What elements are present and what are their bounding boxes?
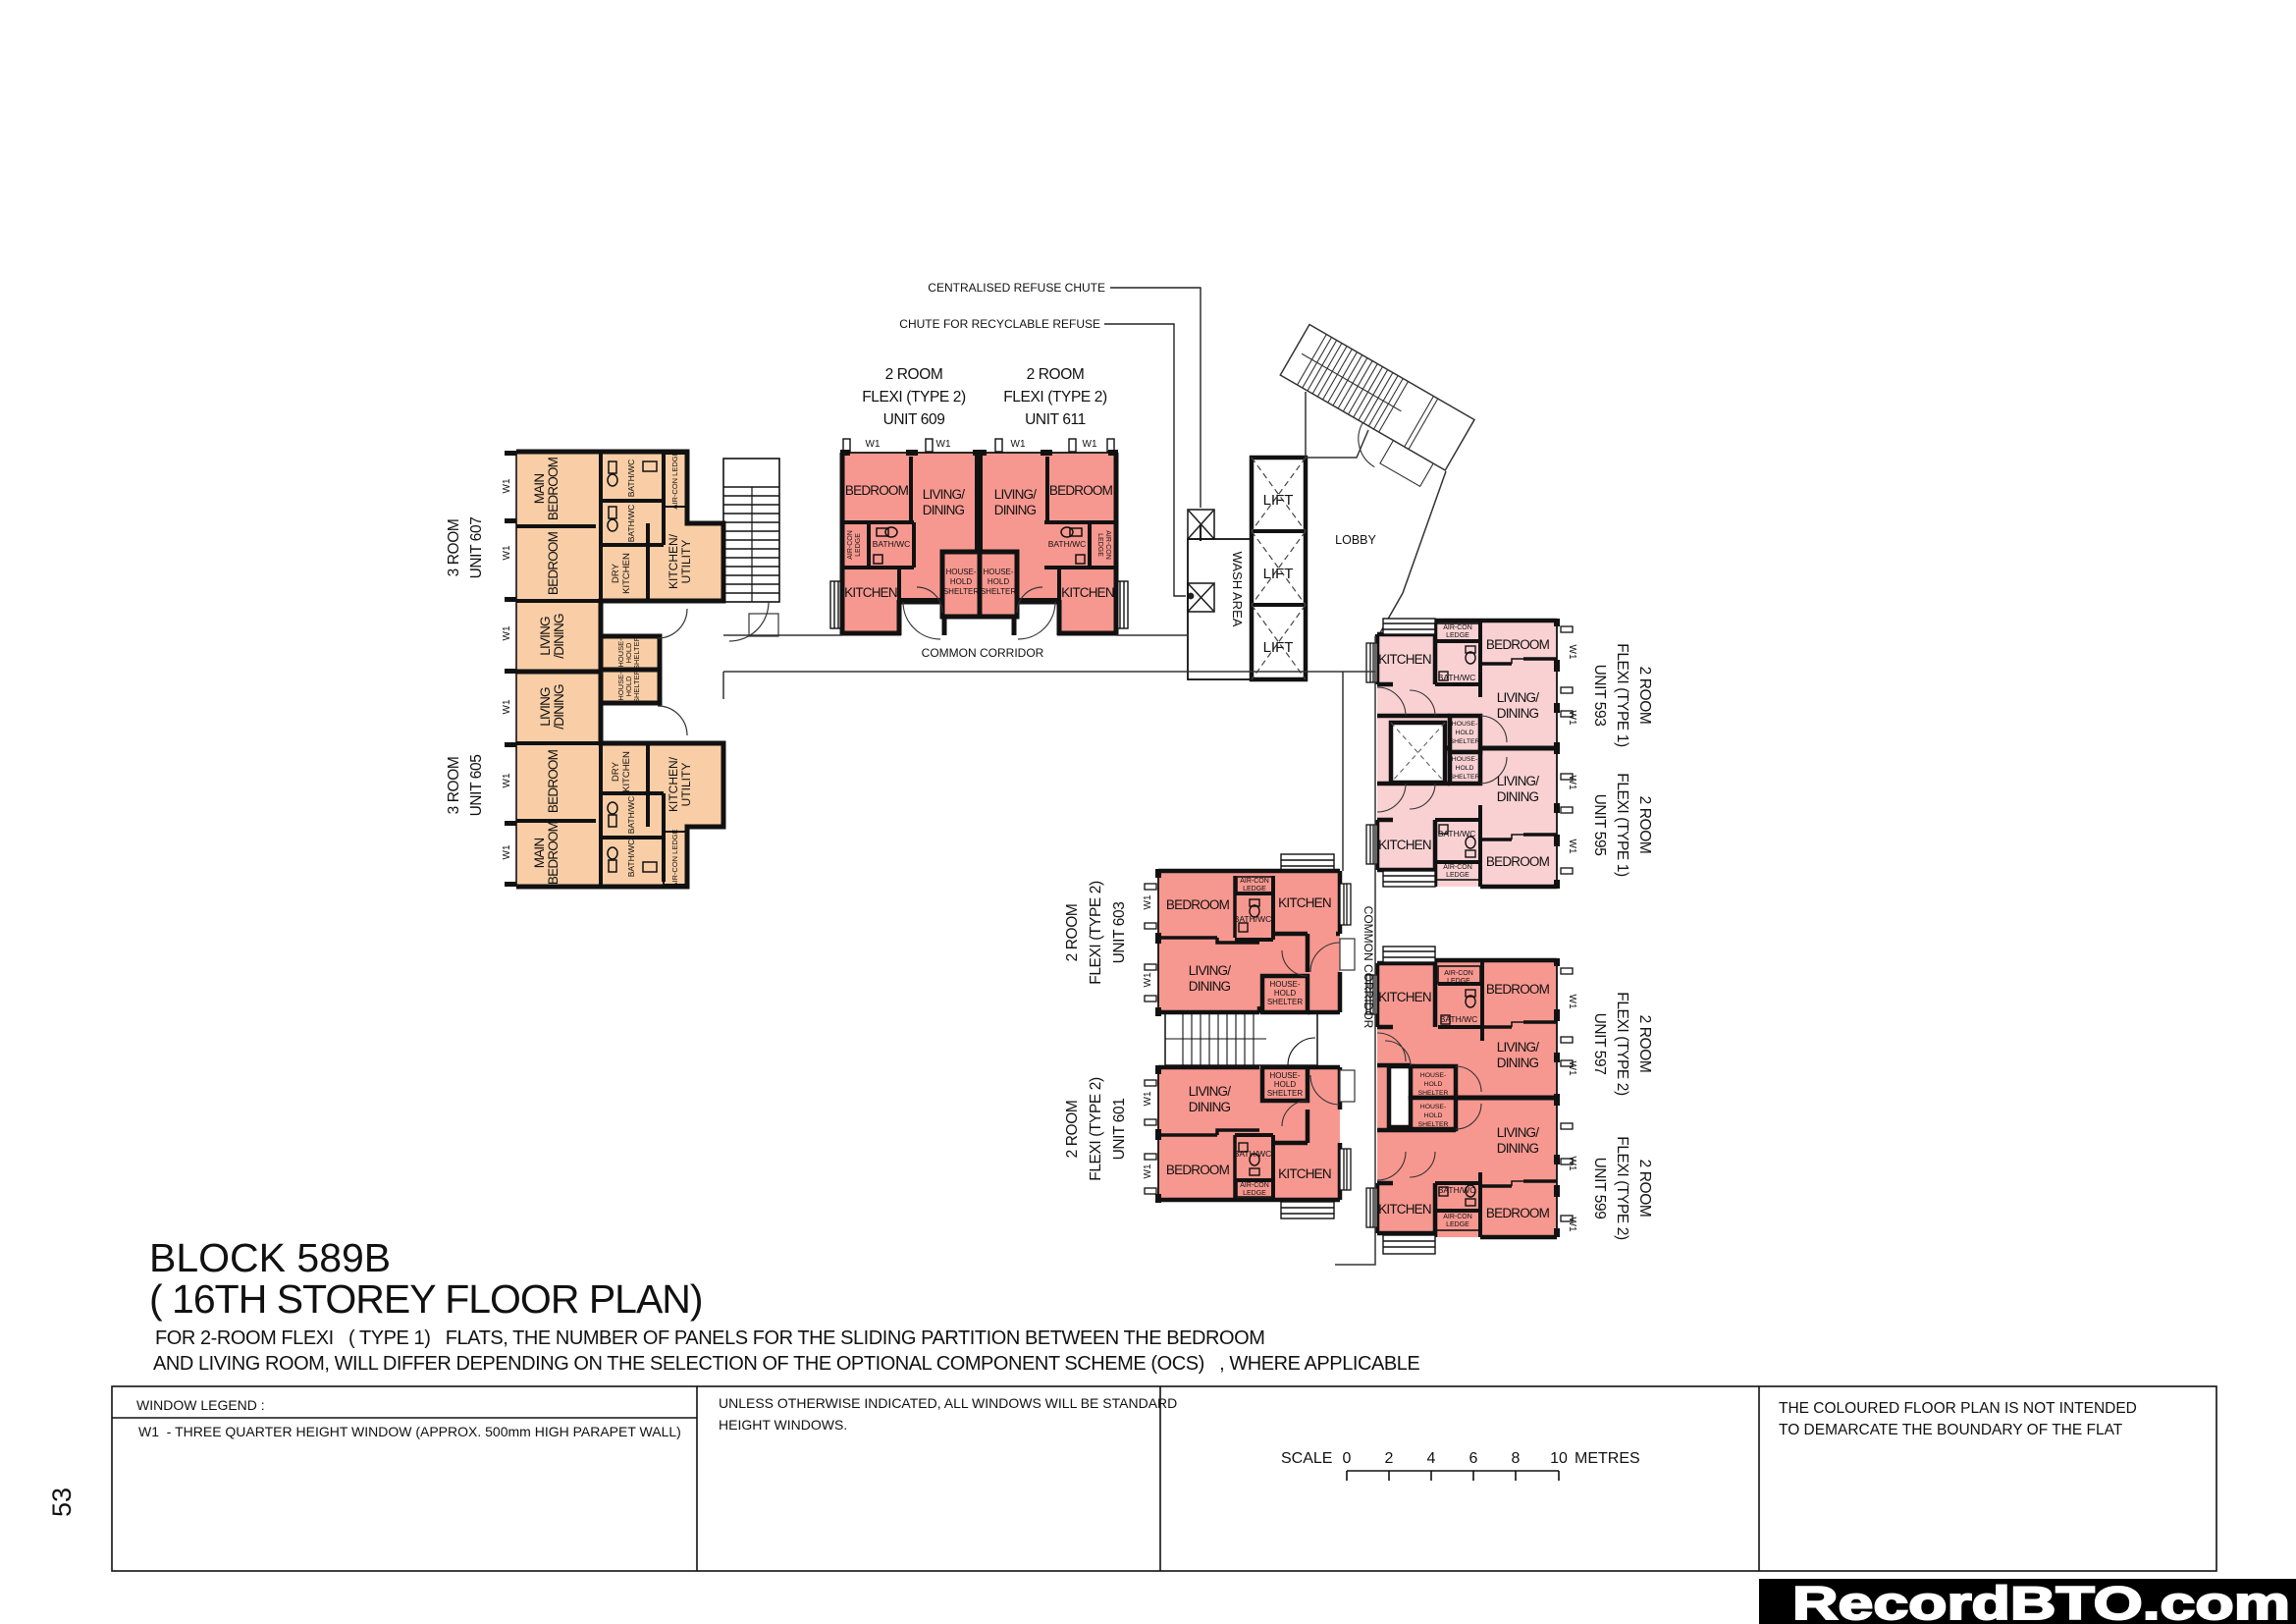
svg-text:KITCHEN/UTILITY: KITCHEN/UTILITY — [667, 756, 693, 812]
svg-text:UNLESS OTHERWISE INDICATED, AL: UNLESS OTHERWISE INDICATED, ALL WINDOWS … — [719, 1395, 1177, 1411]
svg-text:W1: W1 — [1143, 1164, 1153, 1178]
svg-text:BEDROOM: BEDROOM — [1166, 1163, 1230, 1177]
svg-text:LIVING/DINING: LIVING/DINING — [1497, 690, 1539, 721]
svg-text:W1: W1 — [1567, 1157, 1577, 1171]
svg-text:WASH AREA: WASH AREA — [1230, 552, 1245, 627]
svg-text:BATH/WC: BATH/WC — [626, 796, 636, 835]
svg-text:LIVING/DINING: LIVING/DINING — [538, 684, 566, 730]
svg-text:BATH/WC: BATH/WC — [1234, 914, 1272, 924]
svg-text:LIVING/DINING: LIVING/DINING — [1189, 963, 1231, 994]
svg-text:BEDROOM: BEDROOM — [546, 749, 561, 813]
svg-text:BATH/WC: BATH/WC — [1440, 1014, 1478, 1024]
svg-text:BEDROOM: BEDROOM — [1049, 483, 1113, 498]
svg-text:TO DEMARCATE THE BOUNDARY OF T: TO DEMARCATE THE BOUNDARY OF THE FLAT — [1779, 1422, 2123, 1438]
svg-text:W1: W1 — [502, 478, 512, 493]
svg-text:BATH/WC: BATH/WC — [1438, 673, 1476, 682]
svg-text:W1: W1 — [1567, 1218, 1577, 1232]
svg-text:6: 6 — [1469, 1450, 1478, 1467]
svg-text:W1: W1 — [1567, 711, 1577, 726]
svg-text:2: 2 — [1385, 1450, 1394, 1467]
svg-text:KITCHEN: KITCHEN — [1378, 652, 1431, 667]
svg-text:AIR-CONLEDGE: AIR-CONLEDGE — [1444, 970, 1473, 985]
svg-text:KITCHEN: KITCHEN — [1378, 1202, 1431, 1217]
svg-text:W1: W1 — [1567, 1061, 1577, 1076]
svg-text:BATH/WC: BATH/WC — [626, 505, 636, 543]
svg-text:HEIGHT WINDOWS.: HEIGHT WINDOWS. — [719, 1417, 847, 1433]
svg-text:KITCHEN: KITCHEN — [1278, 895, 1331, 910]
svg-text:W1: W1 — [1567, 995, 1577, 1009]
svg-text:LIVING/DINING: LIVING/DINING — [994, 487, 1037, 517]
svg-text:KITCHEN: KITCHEN — [1278, 1166, 1331, 1181]
svg-text:4: 4 — [1427, 1450, 1436, 1467]
svg-text:COMMON CORRIDOR: COMMON CORRIDOR — [922, 646, 1044, 660]
svg-text:BEDROOM: BEDROOM — [845, 483, 909, 498]
svg-text:THE COLOURED FLOOR PLAN IS NOT: THE COLOURED FLOOR PLAN IS NOT INTENDED — [1779, 1400, 2137, 1417]
svg-text:BLOCK 589B: BLOCK 589B — [149, 1235, 391, 1280]
svg-text:AIR-CONLEDGE: AIR-CONLEDGE — [847, 530, 862, 560]
svg-text:W1: W1 — [1143, 972, 1153, 987]
svg-text:0: 0 — [1343, 1450, 1352, 1467]
svg-text:WINDOW LEGEND :: WINDOW LEGEND : — [136, 1397, 265, 1413]
svg-text:FOR 2-ROOM FLEXI ( TYPE 1): FOR 2-ROOM FLEXI ( TYPE 1) FLATS, THE NU… — [155, 1327, 1264, 1349]
svg-text:BEDROOM: BEDROOM — [1486, 637, 1550, 652]
svg-text:LIFT: LIFT — [1263, 566, 1294, 582]
svg-text:W1: W1 — [1567, 839, 1577, 854]
svg-text:W1: W1 — [1143, 1091, 1153, 1106]
svg-text:53: 53 — [47, 1488, 77, 1517]
svg-text:BATH/WC: BATH/WC — [626, 460, 636, 498]
svg-text:KITCHEN/UTILITY: KITCHEN/UTILITY — [667, 533, 693, 589]
svg-text:BATH/WC: BATH/WC — [1438, 1185, 1476, 1195]
svg-text:AIR-CONLEDGE: AIR-CONLEDGE — [1096, 530, 1111, 560]
svg-text:W1: W1 — [1083, 439, 1097, 450]
svg-text:SCALE: SCALE — [1281, 1450, 1332, 1467]
svg-text:BEDROOM: BEDROOM — [1486, 982, 1550, 997]
svg-text:KITCHEN: KITCHEN — [1061, 585, 1114, 600]
svg-text:BATH/WC: BATH/WC — [1234, 1149, 1272, 1159]
svg-text:LIVING/DINING: LIVING/DINING — [1497, 1040, 1539, 1070]
svg-text:AND LIVING ROOM, WILL DIFFER D: AND LIVING ROOM, WILL DIFFER DEPENDING O… — [153, 1353, 1419, 1375]
svg-text:LOBBY: LOBBY — [1335, 533, 1376, 547]
svg-text:BEDROOM: BEDROOM — [1486, 1206, 1550, 1220]
svg-text:LIVING/DINING: LIVING/DINING — [1189, 1084, 1231, 1114]
svg-text:LIVING/DINING: LIVING/DINING — [1497, 1125, 1539, 1156]
svg-text:10: 10 — [1550, 1450, 1568, 1467]
svg-text:LIFT: LIFT — [1263, 492, 1294, 509]
svg-text:AIR-CONLEDGE: AIR-CONLEDGE — [1443, 624, 1472, 639]
svg-text:BATH/WC: BATH/WC — [626, 839, 636, 878]
svg-text:W1: W1 — [502, 699, 512, 714]
svg-text:8: 8 — [1512, 1450, 1521, 1467]
svg-text:COMMON CORRIDOR: COMMON CORRIDOR — [1362, 906, 1375, 1029]
svg-text:W1: W1 — [502, 545, 512, 560]
svg-text:KITCHEN: KITCHEN — [1378, 990, 1431, 1004]
svg-text:BATH/WC: BATH/WC — [1438, 829, 1476, 839]
svg-text:W1: W1 — [1567, 645, 1577, 660]
svg-text:LIVING/DINING: LIVING/DINING — [1497, 774, 1539, 804]
svg-text:W1: W1 — [502, 625, 512, 640]
svg-text:RecordBTO.com: RecordBTO.com — [1792, 1577, 2290, 1624]
svg-text:BATH/WC: BATH/WC — [1048, 539, 1087, 549]
svg-text:W1: W1 — [1567, 776, 1577, 790]
svg-text:METRES: METRES — [1575, 1450, 1640, 1467]
svg-text:W1: W1 — [1143, 894, 1153, 909]
svg-text:LIVING/DINING: LIVING/DINING — [538, 614, 566, 659]
svg-text:KITCHEN: KITCHEN — [844, 585, 897, 600]
svg-text:AIR-CONLEDGE: AIR-CONLEDGE — [1240, 1182, 1269, 1197]
svg-text:( 16TH STOREY FLOOR PLAN): ( 16TH STOREY FLOOR PLAN) — [149, 1276, 703, 1322]
svg-text:BEDROOM: BEDROOM — [546, 531, 561, 595]
svg-text:LIFT: LIFT — [1263, 639, 1294, 656]
svg-text:AIR-CON LEDGE: AIR-CON LEDGE — [670, 451, 679, 509]
svg-text:LIVING/DINING: LIVING/DINING — [923, 487, 965, 517]
svg-text:W1 - THREE QUARTER HEIGHT WIN: W1 - THREE QUARTER HEIGHT WINDOW (APPROX… — [138, 1424, 681, 1439]
svg-text:W1: W1 — [502, 844, 512, 859]
svg-text:AIR-CON LEDGE: AIR-CON LEDGE — [670, 829, 679, 887]
svg-text:CHUTE FOR RECYCLABLE REFUSE: CHUTE FOR RECYCLABLE REFUSE — [899, 317, 1100, 331]
svg-text:KITCHEN: KITCHEN — [1378, 838, 1431, 852]
svg-text:W1: W1 — [1011, 439, 1026, 450]
svg-text:AIR-CONLEDGE: AIR-CONLEDGE — [1443, 1214, 1472, 1228]
svg-text:BEDROOM: BEDROOM — [1486, 854, 1550, 869]
svg-text:W1: W1 — [502, 773, 512, 787]
svg-text:BEDROOM: BEDROOM — [1166, 897, 1230, 912]
svg-text:BATH/WC: BATH/WC — [873, 539, 911, 549]
svg-text:CENTRALISED REFUSE CHUTE: CENTRALISED REFUSE CHUTE — [928, 281, 1105, 295]
svg-text:AIR-CONLEDGE: AIR-CONLEDGE — [1443, 864, 1472, 879]
svg-text:W1: W1 — [866, 439, 881, 450]
svg-text:W1: W1 — [936, 439, 951, 450]
svg-text:AIR-CONLEDGE: AIR-CONLEDGE — [1240, 878, 1269, 893]
